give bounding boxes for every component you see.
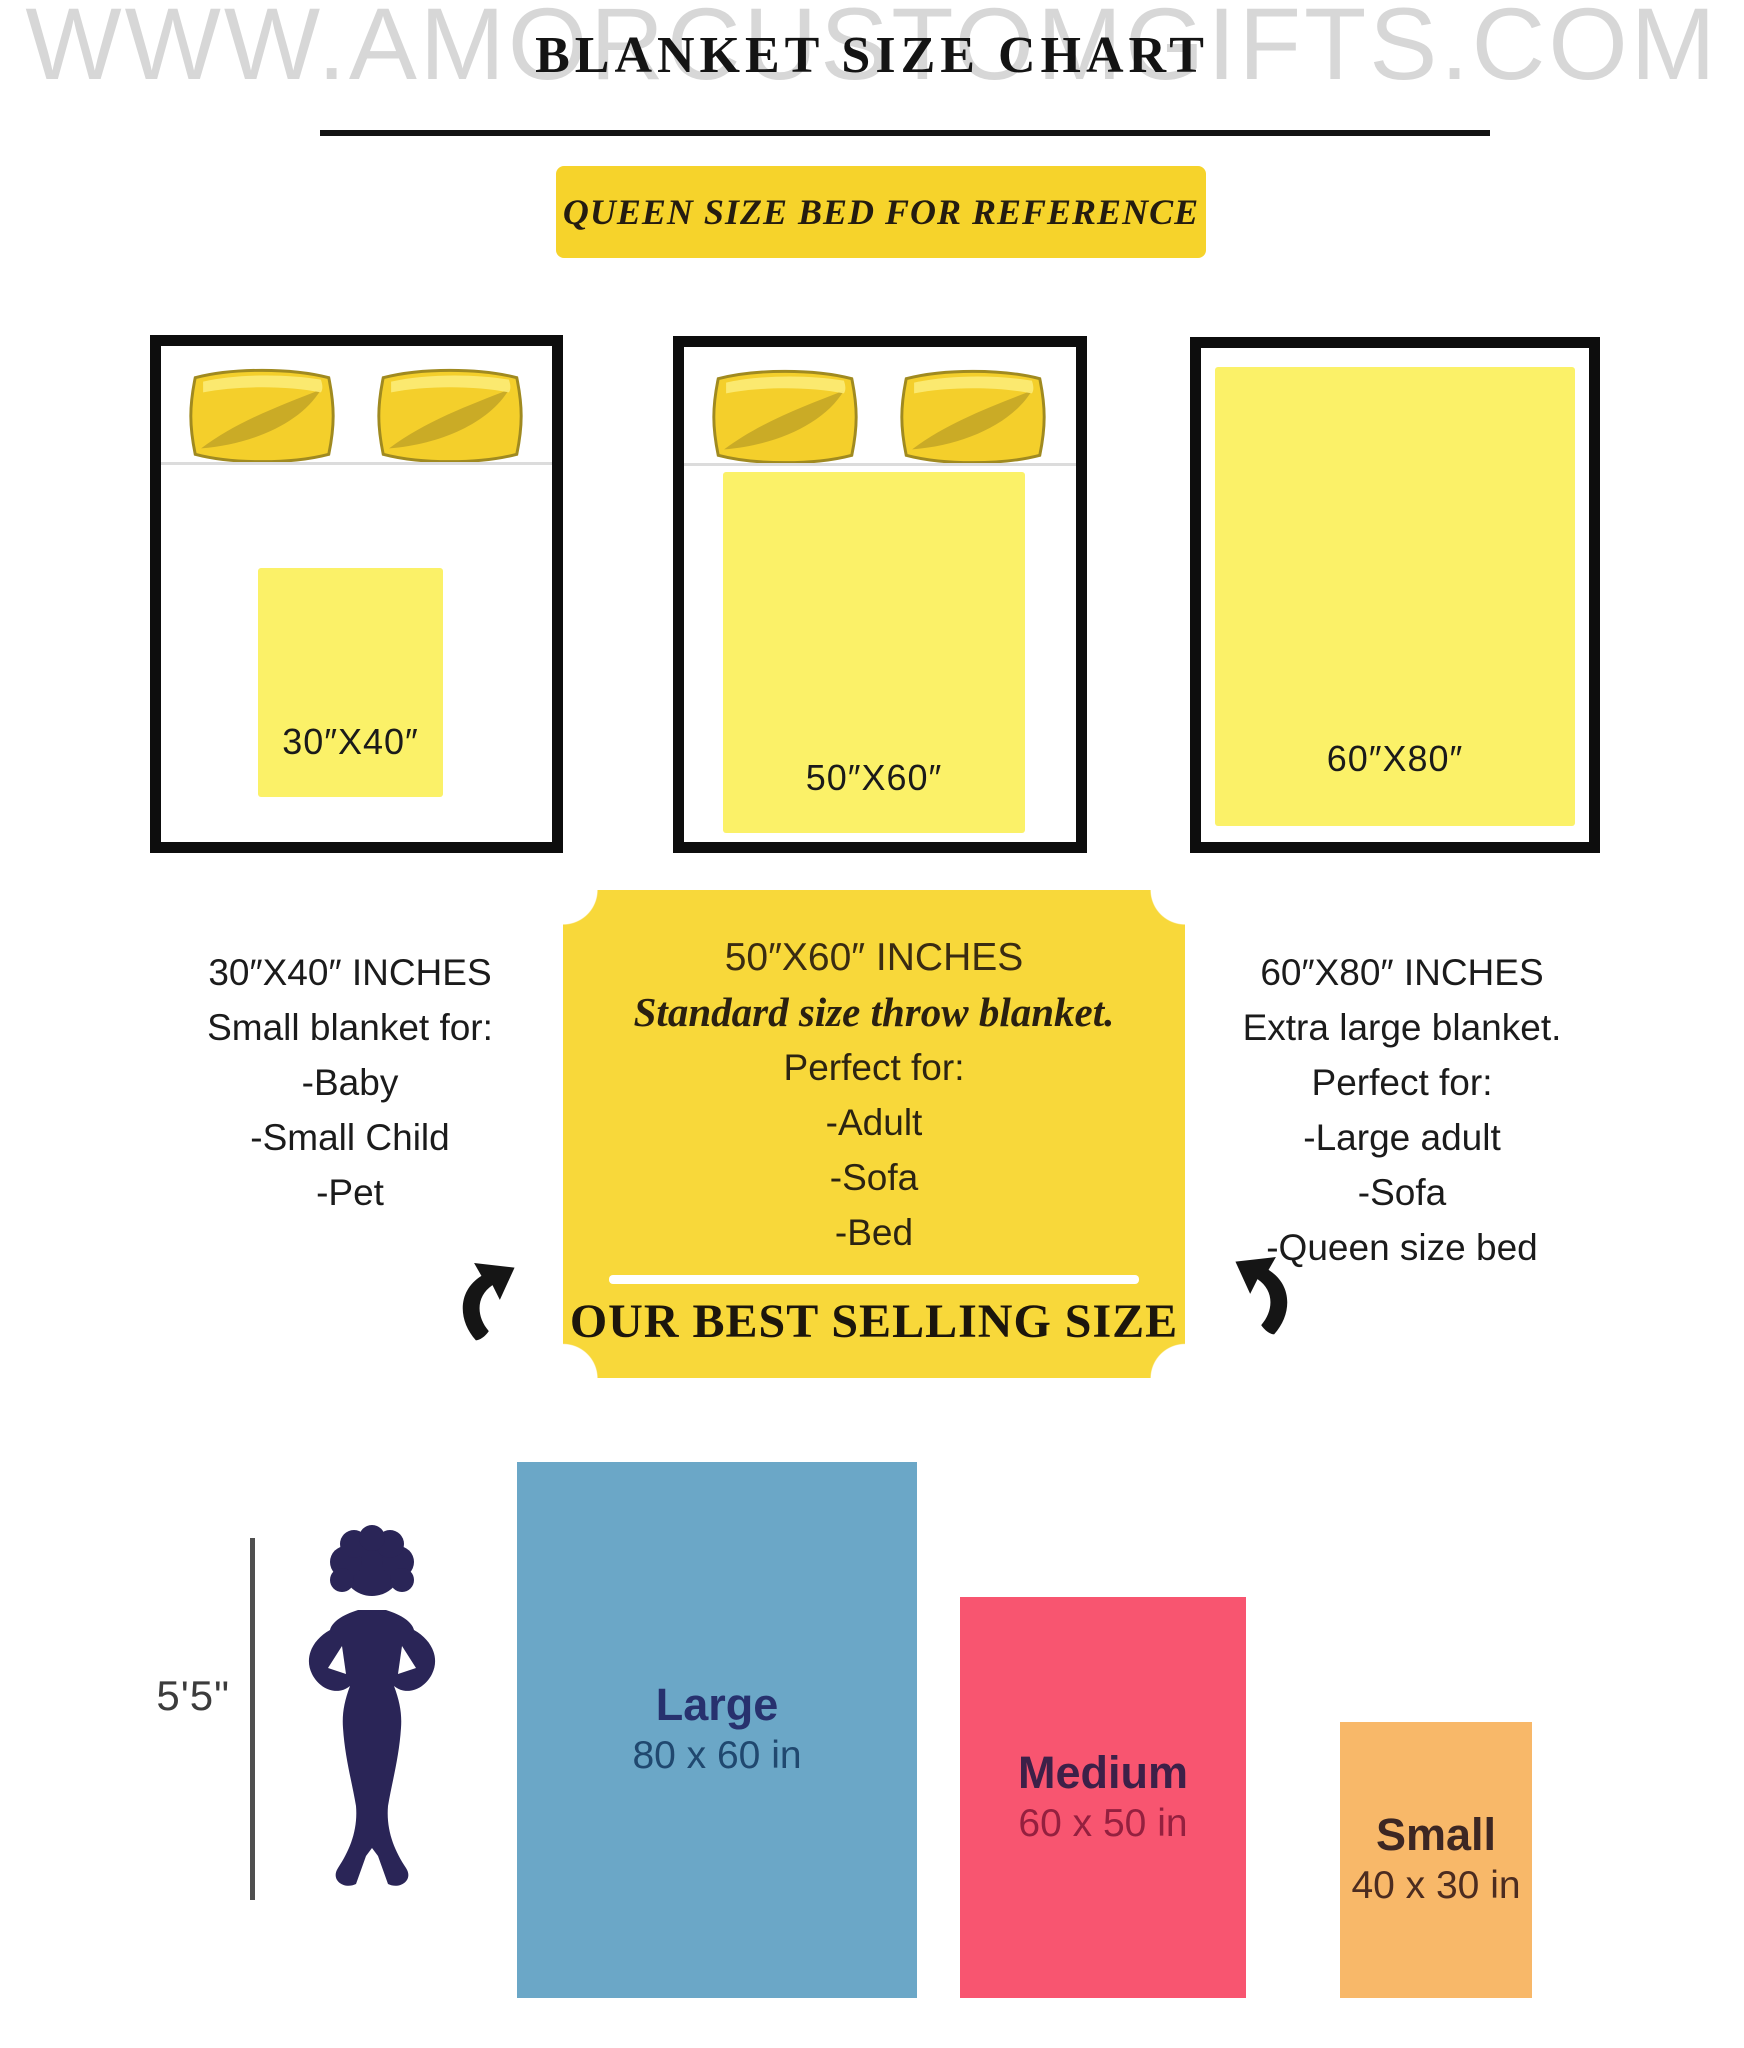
blanket-size-label: 50″X60″ <box>723 757 1025 799</box>
notes-xl-item: -Large adult <box>1172 1110 1632 1165</box>
blanket-60x80: 60″X80″ <box>1215 367 1575 826</box>
blanket-50x60: 50″X60″ <box>723 472 1025 833</box>
sheet-fold-line <box>161 462 552 465</box>
ticket-item: -Sofa <box>563 1150 1185 1205</box>
best-selling-ticket: 50″X60″ INCHES Standard size throw blank… <box>563 890 1185 1378</box>
blanket-size-label: 60″X80″ <box>1215 738 1575 780</box>
size-swatch-medium: Medium 60 x 50 in <box>960 1597 1246 1998</box>
size-dims: 60 x 50 in <box>1018 1799 1188 1849</box>
reference-banner-label: QUEEN SIZE BED FOR REFERENCE <box>563 191 1199 233</box>
ticket-item: -Bed <box>563 1205 1185 1260</box>
notes-small-subheading: Small blanket for: <box>120 1000 580 1055</box>
pillow-icon <box>704 363 866 471</box>
bed-diagram-30x40: 30″X40″ <box>150 335 563 853</box>
notes-xl-subheading: Extra large blanket. <box>1172 1000 1632 1055</box>
curved-arrow-left-icon <box>1206 1246 1298 1338</box>
blanket-30x40: 30″X40″ <box>258 568 443 797</box>
ticket-heading: 50″X60″ INCHES <box>563 930 1185 985</box>
size-name: Small <box>1351 1809 1520 1861</box>
ticket-intro: Perfect for: <box>563 1040 1185 1095</box>
blanket-size-label: 30″X40″ <box>258 721 443 763</box>
notes-xl-heading: 60″X80″ INCHES <box>1172 945 1632 1000</box>
bed-diagram-60x80: 60″X80″ <box>1190 337 1600 853</box>
notes-xl-intro: Perfect for: <box>1172 1055 1632 1110</box>
size-dims: 80 x 60 in <box>632 1731 801 1781</box>
height-reference-line <box>250 1538 255 1900</box>
ticket-item: -Adult <box>563 1095 1185 1150</box>
best-selling-label: OUR BEST SELLING SIZE <box>563 1294 1185 1349</box>
bed-diagram-50x60: 50″X60″ <box>673 336 1087 853</box>
notes-small-item: -Baby <box>120 1055 580 1110</box>
ticket-divider <box>609 1275 1139 1284</box>
sheet-fold-line <box>684 463 1076 466</box>
pillow-icon <box>369 362 531 470</box>
size-name: Medium <box>1018 1747 1188 1799</box>
notes-small-size: 30″X40″ INCHES Small blanket for: -Baby … <box>120 945 580 1220</box>
size-swatch-small: Small 40 x 30 in <box>1340 1722 1532 1998</box>
blanket-size-chart-infographic: WWW.AMORCUSTOMGIFTS.COM BLANKET SIZE CHA… <box>0 0 1744 2048</box>
size-swatch-large: Large 80 x 60 in <box>517 1462 917 1998</box>
person-silhouette-icon <box>272 1518 472 1908</box>
notes-xl-item: -Sofa <box>1172 1165 1632 1220</box>
size-dims: 40 x 30 in <box>1351 1861 1520 1911</box>
size-name: Large <box>632 1679 801 1731</box>
notes-small-item: -Pet <box>120 1165 580 1220</box>
page-title: BLANKET SIZE CHART <box>0 26 1744 85</box>
pillow-icon <box>892 363 1054 471</box>
title-underline <box>320 130 1490 136</box>
height-label: 5'5" <box>110 1672 230 1720</box>
ticket-tagline: Standard size throw blanket. <box>563 985 1185 1040</box>
notes-small-heading: 30″X40″ INCHES <box>120 945 580 1000</box>
pillow-icon <box>181 362 343 470</box>
reference-banner: QUEEN SIZE BED FOR REFERENCE <box>556 166 1206 258</box>
notes-small-item: -Small Child <box>120 1110 580 1165</box>
notes-xl-size: 60″X80″ INCHES Extra large blanket. Perf… <box>1172 945 1632 1275</box>
curved-arrow-right-icon <box>452 1252 544 1344</box>
